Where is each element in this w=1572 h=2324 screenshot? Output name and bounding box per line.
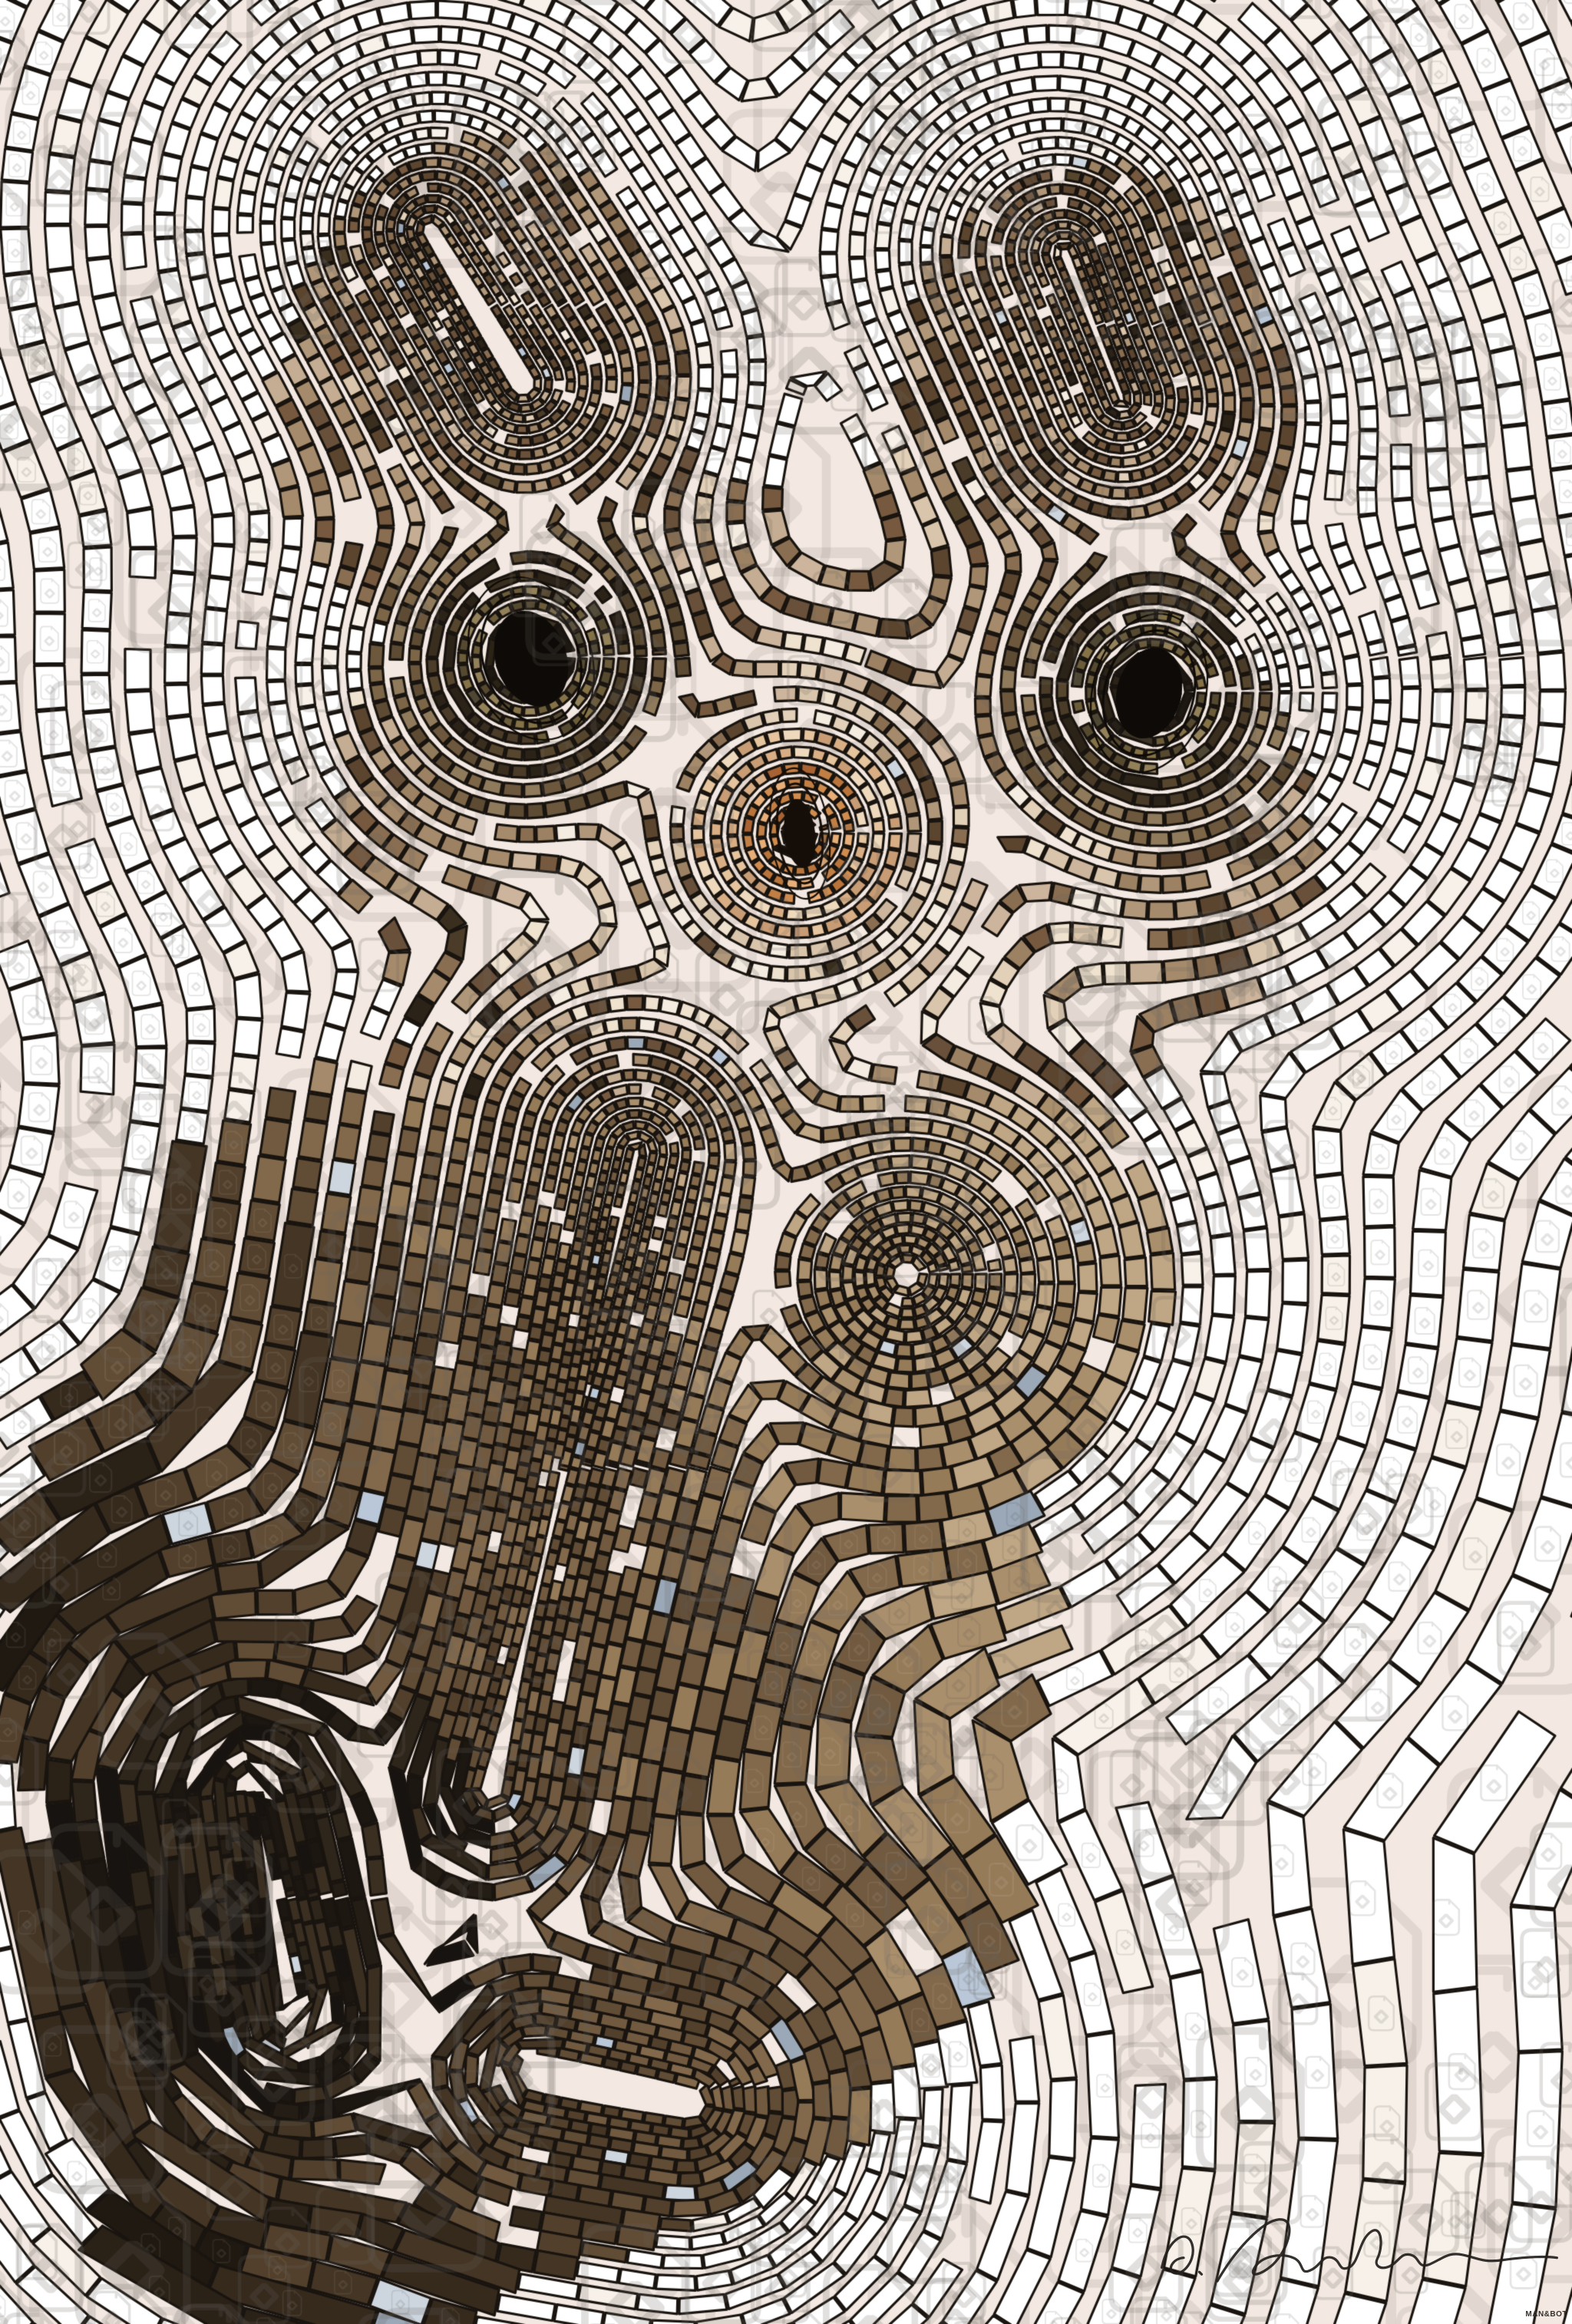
- credit-label: MAN&BOT: [1525, 2310, 1567, 2319]
- signature-stroke: [1162, 2220, 1557, 2281]
- mosaic-canvas: [0, 0, 1572, 2324]
- mosaic-artwork: MAN&BOT: [0, 0, 1572, 2324]
- artist-signature: [1148, 2181, 1569, 2313]
